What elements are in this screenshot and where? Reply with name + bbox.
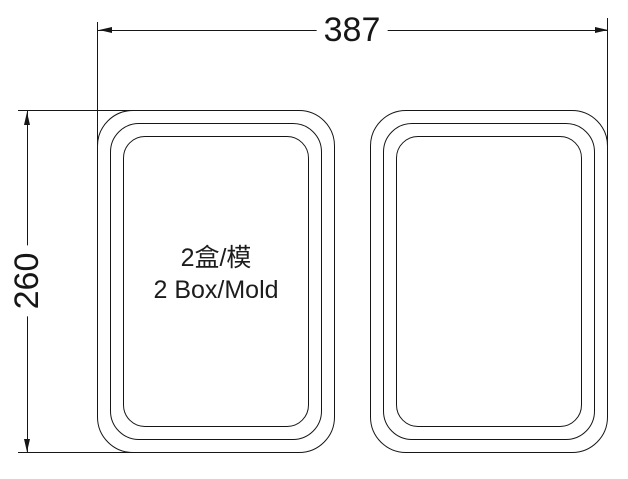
arrowhead-down-icon: [24, 439, 30, 452]
right-cavity: [370, 110, 608, 453]
cavity-count-label-zh: 2盒/模: [97, 242, 335, 274]
technical-drawing-canvas: 387 260 2盒/模 2 Box/Mold: [0, 0, 628, 479]
height-dimension-value: 260: [10, 246, 44, 317]
cavity-count-label: 2盒/模 2 Box/Mold: [97, 242, 335, 306]
width-dimension-value: 387: [317, 13, 388, 47]
arrowhead-up-icon: [24, 112, 30, 125]
arrowhead-left-icon: [99, 27, 112, 33]
arrowhead-right-icon: [595, 27, 608, 33]
right-cavity-inner-outline: [396, 136, 582, 427]
cavity-count-label-en: 2 Box/Mold: [97, 274, 335, 306]
